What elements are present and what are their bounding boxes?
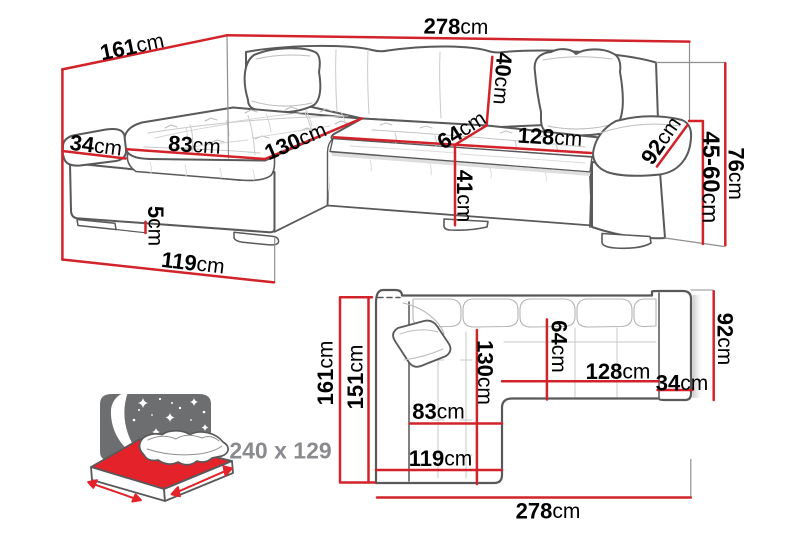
svg-text:92cm: 92cm bbox=[713, 313, 738, 365]
svg-text:83cm: 83cm bbox=[167, 131, 221, 160]
svg-text:5cm: 5cm bbox=[143, 206, 168, 246]
svg-text:40cm: 40cm bbox=[488, 51, 517, 105]
svg-text:130cm: 130cm bbox=[473, 340, 498, 405]
svg-text:278cm: 278cm bbox=[516, 499, 581, 524]
svg-text:83cm: 83cm bbox=[412, 399, 464, 424]
svg-text:45-60cm: 45-60cm bbox=[697, 131, 724, 223]
svg-text:128cm: 128cm bbox=[586, 359, 651, 384]
svg-text:34cm: 34cm bbox=[656, 370, 708, 395]
svg-text:240 x 129: 240 x 129 bbox=[229, 438, 331, 464]
svg-text:128cm: 128cm bbox=[517, 123, 583, 152]
svg-text:119cm: 119cm bbox=[160, 247, 226, 279]
svg-text:161cm: 161cm bbox=[98, 28, 166, 66]
svg-text:76cm: 76cm bbox=[724, 147, 749, 199]
svg-text:64cm: 64cm bbox=[547, 320, 572, 372]
svg-text:151cm: 151cm bbox=[343, 345, 368, 410]
svg-text:278cm: 278cm bbox=[423, 14, 488, 40]
svg-text:41cm: 41cm bbox=[452, 170, 477, 222]
svg-text:161cm: 161cm bbox=[313, 341, 338, 406]
svg-text:119cm: 119cm bbox=[409, 446, 473, 471]
